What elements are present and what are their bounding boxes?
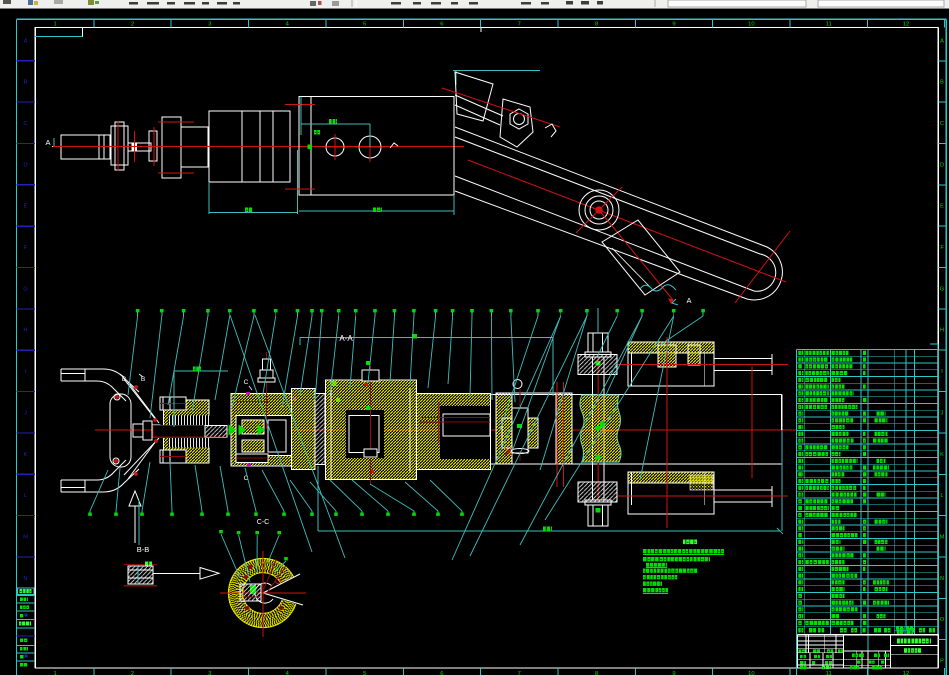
svg-text:8: 8 <box>595 21 598 27</box>
svg-text:1: 1 <box>54 21 57 27</box>
svg-text:10: 10 <box>748 21 754 27</box>
svg-text:5: 5 <box>363 671 366 675</box>
svg-text:K: K <box>940 452 944 458</box>
svg-text:2: 2 <box>131 671 134 675</box>
svg-text:6: 6 <box>440 671 443 675</box>
svg-text:B: B <box>940 80 944 86</box>
svg-text:C: C <box>244 379 249 386</box>
svg-text:7: 7 <box>518 21 521 27</box>
svg-text:C: C <box>940 121 944 127</box>
svg-text:H: H <box>940 328 944 334</box>
svg-text:F: F <box>24 245 28 251</box>
svg-text:C: C <box>23 121 27 127</box>
svg-text:A: A <box>24 38 28 44</box>
svg-text:B-B: B-B <box>137 545 150 554</box>
svg-text:O: O <box>940 617 945 623</box>
svg-text:P: P <box>940 659 944 665</box>
svg-text:G: G <box>23 286 28 292</box>
svg-text:11: 11 <box>826 671 832 675</box>
svg-text:E: E <box>24 204 28 210</box>
svg-text:D: D <box>23 162 27 168</box>
svg-text:8: 8 <box>595 671 598 675</box>
svg-text:J: J <box>941 410 944 416</box>
svg-text:E: E <box>940 204 944 210</box>
svg-text:A: A <box>940 38 944 44</box>
svg-text:G: G <box>940 286 944 292</box>
svg-text:K: K <box>24 452 28 458</box>
svg-text:A: A <box>45 138 50 147</box>
svg-text:6: 6 <box>440 21 443 27</box>
svg-text:10: 10 <box>748 671 754 675</box>
svg-text:D: D <box>940 162 944 168</box>
svg-text:N: N <box>940 576 944 582</box>
svg-text:1: 1 <box>54 671 57 675</box>
svg-text:3: 3 <box>208 21 211 27</box>
svg-text:3: 3 <box>208 671 211 675</box>
svg-text:12: 12 <box>903 21 909 27</box>
svg-text:11: 11 <box>826 21 832 27</box>
svg-text:9: 9 <box>672 21 675 27</box>
svg-text:2: 2 <box>131 21 134 27</box>
svg-text:B: B <box>122 376 126 383</box>
svg-text:5: 5 <box>363 21 366 27</box>
svg-text:H: H <box>23 328 27 334</box>
svg-text:M: M <box>940 534 945 540</box>
svg-text:L: L <box>940 493 943 499</box>
svg-text:B: B <box>24 80 28 86</box>
svg-text:12: 12 <box>903 671 909 675</box>
svg-text:B: B <box>141 376 145 383</box>
svg-text:A-A: A-A <box>339 334 353 343</box>
svg-text:C-C: C-C <box>257 519 269 526</box>
svg-text:J: J <box>24 410 27 416</box>
svg-text:M: M <box>23 534 28 540</box>
svg-text:A: A <box>686 296 691 305</box>
svg-text:7: 7 <box>518 671 521 675</box>
svg-text:N: N <box>23 576 27 582</box>
svg-text:9: 9 <box>672 671 675 675</box>
